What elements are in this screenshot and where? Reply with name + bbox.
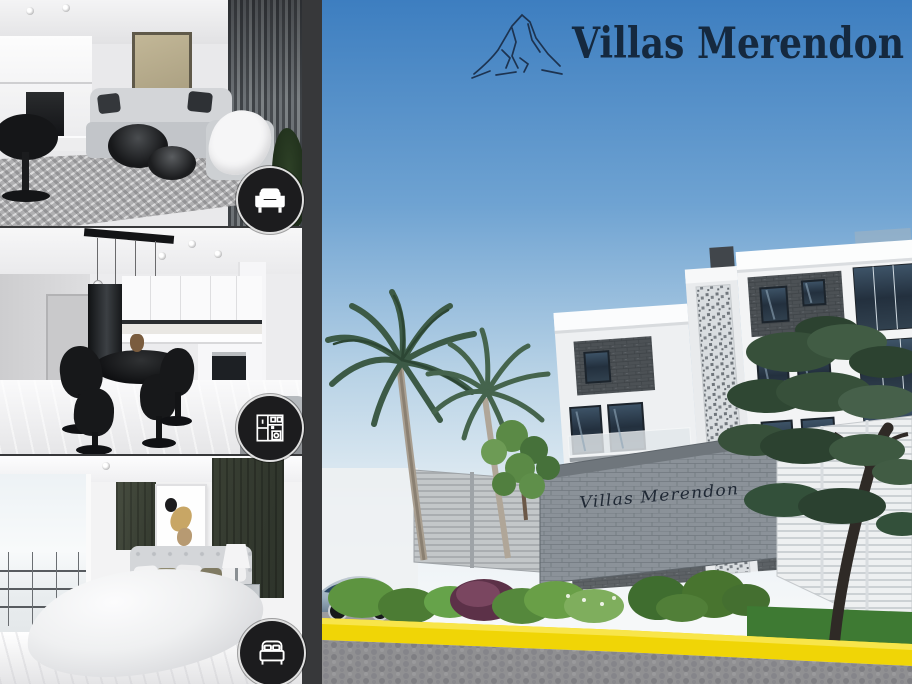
render-panel: Villas Merendon — [322, 0, 912, 684]
table-vase — [130, 334, 144, 352]
sofa-icon — [251, 181, 289, 219]
upper-cabinets — [122, 276, 262, 324]
table-lamp — [222, 544, 250, 568]
accent-wall-panel — [116, 482, 156, 550]
recessed-light — [158, 252, 166, 260]
living-room-badge — [236, 166, 304, 234]
backsplash — [122, 324, 262, 334]
black-chair — [0, 114, 58, 160]
recessed-light — [214, 250, 222, 258]
kitchen-badge — [236, 394, 304, 462]
bedroom-badge — [238, 619, 306, 684]
recessed-light — [62, 4, 70, 12]
coffee-table — [148, 146, 196, 180]
bed-icon — [253, 634, 291, 672]
pillow — [97, 93, 121, 115]
recessed-light — [188, 240, 196, 248]
flyer-canvas: Villas Merendon — [0, 0, 912, 684]
exterior-render: Villas Merendon — [322, 0, 912, 684]
pillow — [187, 91, 213, 113]
kitchen-cabinets-icon — [251, 409, 289, 447]
recessed-light — [26, 7, 34, 15]
brand-name: Villas Merendon — [571, 19, 904, 69]
recessed-light — [102, 462, 110, 470]
photo-gallery-strip — [0, 0, 322, 684]
